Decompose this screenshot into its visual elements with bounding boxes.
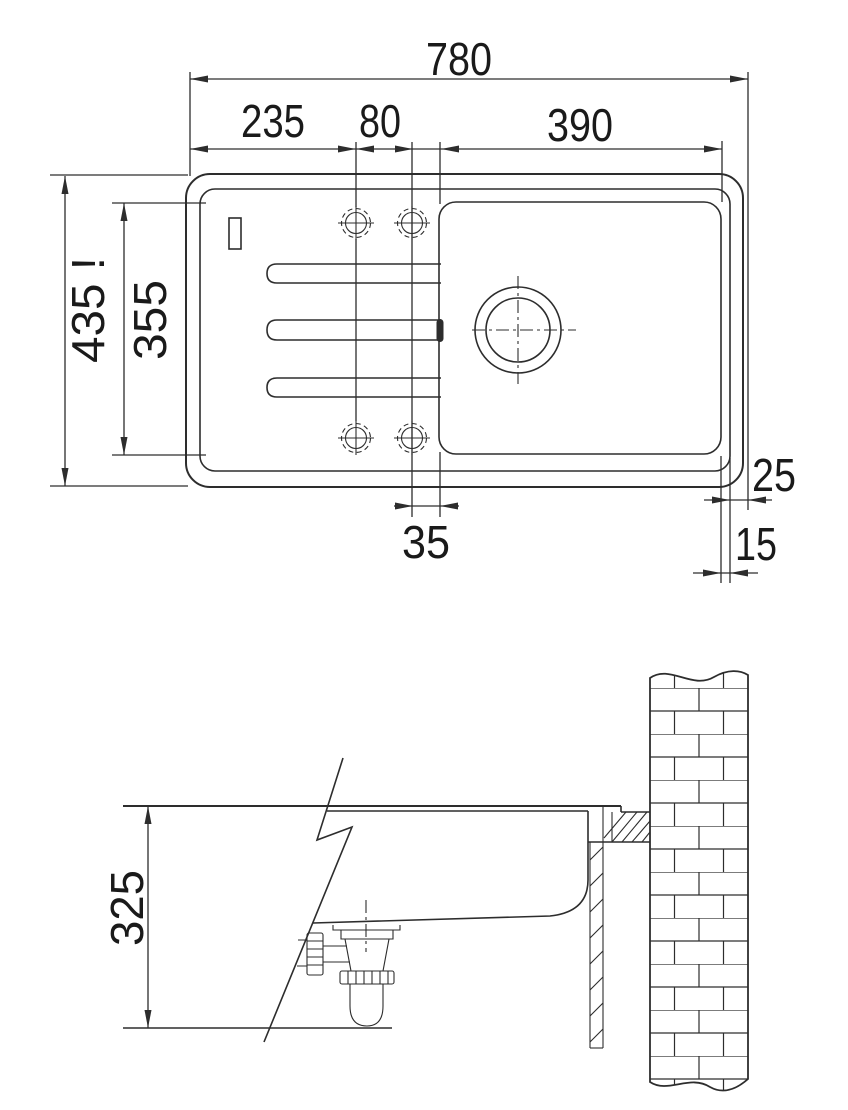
panel-hatching [590, 847, 603, 1042]
dim-overall-depth: 435 ! [62, 257, 114, 363]
sink-rim-line [200, 189, 730, 471]
dim-tap-hole-spacing: 80 [359, 95, 401, 147]
bowl-outline [439, 202, 721, 454]
dim-installation-depth: 325 [101, 870, 153, 946]
break-line [264, 758, 352, 1042]
waste-nut-ribs [348, 971, 388, 984]
technical-drawing-page: 780 235 80 390 435 ! 355 35 25 15 [0, 0, 848, 1110]
bowl-section-profile [313, 811, 588, 923]
overflow-slot [437, 319, 444, 342]
brick-wall [650, 671, 748, 1090]
dim-inner-depth: 355 [124, 280, 176, 360]
side-outlet-nut [307, 933, 323, 975]
drainer-grooves [267, 264, 444, 397]
worktop-fixing-detail [588, 806, 650, 842]
dim-tap-hole-to-bowl: 35 [402, 516, 450, 568]
dim-drainer-width: 235 [241, 95, 305, 147]
waste-flange-lower [341, 930, 393, 939]
dim-bowl-to-rim: 15 [735, 518, 777, 570]
sink-drawing-svg: 780 235 80 390 435 ! 355 35 25 15 [0, 0, 848, 1110]
waste-body-taper [345, 939, 389, 971]
tap-hole [338, 421, 374, 455]
dim-rim-to-edge: 25 [752, 449, 796, 501]
tap-hole [338, 206, 374, 240]
drain-outlet [472, 276, 576, 384]
dim-overall-width: 780 [426, 33, 492, 85]
waste-cup [350, 984, 383, 1026]
worktop-hatching [604, 812, 650, 842]
brick-wall-section [650, 671, 748, 1090]
sink-outer-edge [186, 174, 743, 487]
tap-holes [338, 206, 430, 455]
sink-top-view: 780 235 80 390 435 ! 355 35 25 15 [50, 33, 796, 583]
sink-side-view: 325 [101, 671, 748, 1090]
side-outlet-ribs [307, 941, 323, 965]
dim-bowl-width: 390 [547, 99, 613, 151]
waste-trap-assembly [297, 900, 400, 1026]
cabinet-panel [590, 842, 603, 1048]
drainer-marker [229, 218, 241, 249]
